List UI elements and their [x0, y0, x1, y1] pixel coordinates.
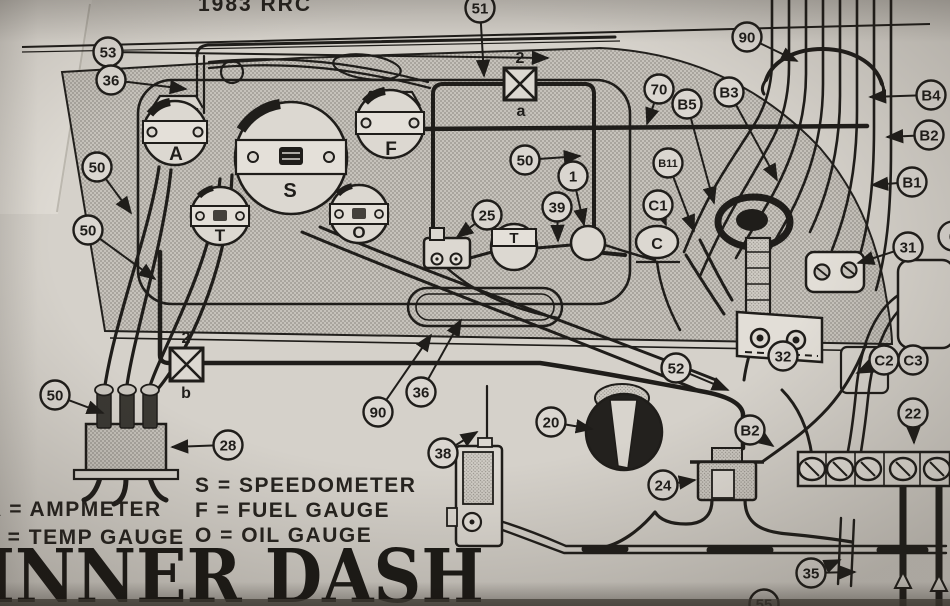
svg-text:32: 32: [775, 349, 792, 366]
svg-text:31: 31: [900, 240, 917, 257]
gauge-temp: T: [191, 187, 249, 245]
svg-text:50: 50: [80, 223, 97, 240]
svg-text:B11: B11: [658, 158, 678, 170]
page-top-label: 1983 RRC: [198, 0, 312, 16]
callout-32-14: 32: [769, 342, 798, 371]
svg-text:53: 53: [100, 45, 117, 62]
legend-ammeter: A = AMPMETER: [0, 498, 162, 521]
svg-text:36: 36: [103, 73, 120, 90]
svg-text:51: 51: [472, 1, 489, 18]
wiring-diagram-photo: 1983 RRC: [0, 0, 950, 606]
svg-text:C1: C1: [648, 198, 667, 215]
svg-text:2: 2: [182, 330, 191, 347]
page-title: INNER DASH: [0, 534, 484, 606]
svg-text:50: 50: [517, 153, 534, 170]
svg-text:38: 38: [435, 446, 452, 463]
svg-text:90: 90: [370, 405, 387, 422]
svg-text:20: 20: [543, 415, 560, 432]
svg-text:C2: C2: [874, 353, 893, 370]
svg-text:T: T: [509, 230, 518, 247]
bracket-31: [806, 252, 864, 292]
side-panel: [898, 260, 950, 348]
svg-text:B5: B5: [677, 97, 696, 114]
gauge-speedometer: S: [235, 102, 347, 214]
svg-text:A: A: [169, 144, 183, 165]
callout-c3-16: C3: [899, 346, 928, 375]
svg-text:T: T: [215, 226, 226, 245]
svg-text:O: O: [352, 223, 365, 242]
gauge-oil: O: [330, 185, 388, 243]
svg-text:39: 39: [549, 200, 566, 217]
gauge-fuel: F: [356, 90, 424, 160]
svg-text:22: 22: [905, 406, 922, 423]
svg-text:35: 35: [803, 566, 820, 583]
svg-text:28: 28: [220, 438, 237, 455]
svg-text:B2: B2: [740, 423, 759, 440]
svg-text:F: F: [385, 139, 397, 160]
svg-text:36: 36: [413, 385, 430, 402]
svg-text:C: C: [651, 236, 663, 253]
sender-canister-t: T: [491, 224, 537, 270]
svg-text:1: 1: [569, 169, 577, 186]
svg-text:b: b: [181, 385, 191, 402]
svg-text:25: 25: [479, 208, 496, 225]
svg-text:90: 90: [739, 30, 756, 47]
svg-text:S: S: [283, 180, 296, 202]
svg-text:B1: B1: [902, 175, 921, 192]
svg-text:a: a: [517, 103, 526, 120]
svg-text:24: 24: [655, 478, 672, 495]
legend-fuel: F = FUEL GAUGE: [195, 499, 390, 522]
svg-text:B2: B2: [919, 128, 938, 145]
grommet-1: [571, 226, 605, 260]
svg-text:C3: C3: [903, 353, 922, 370]
svg-text:70: 70: [651, 82, 668, 99]
svg-text:B3: B3: [719, 85, 738, 102]
svg-text:50: 50: [47, 388, 64, 405]
wiring-diagram-svg: 1983 RRC: [0, 0, 950, 606]
terminal-block-22: [798, 452, 950, 486]
svg-text:52: 52: [668, 361, 685, 378]
legend-speedometer: S = SPEEDOMETER: [195, 474, 416, 497]
svg-text:B4: B4: [921, 88, 941, 105]
svg-text:50: 50: [89, 160, 106, 177]
photo-bottom-edge: [0, 599, 950, 606]
gauge-ammeter: A: [143, 96, 207, 165]
